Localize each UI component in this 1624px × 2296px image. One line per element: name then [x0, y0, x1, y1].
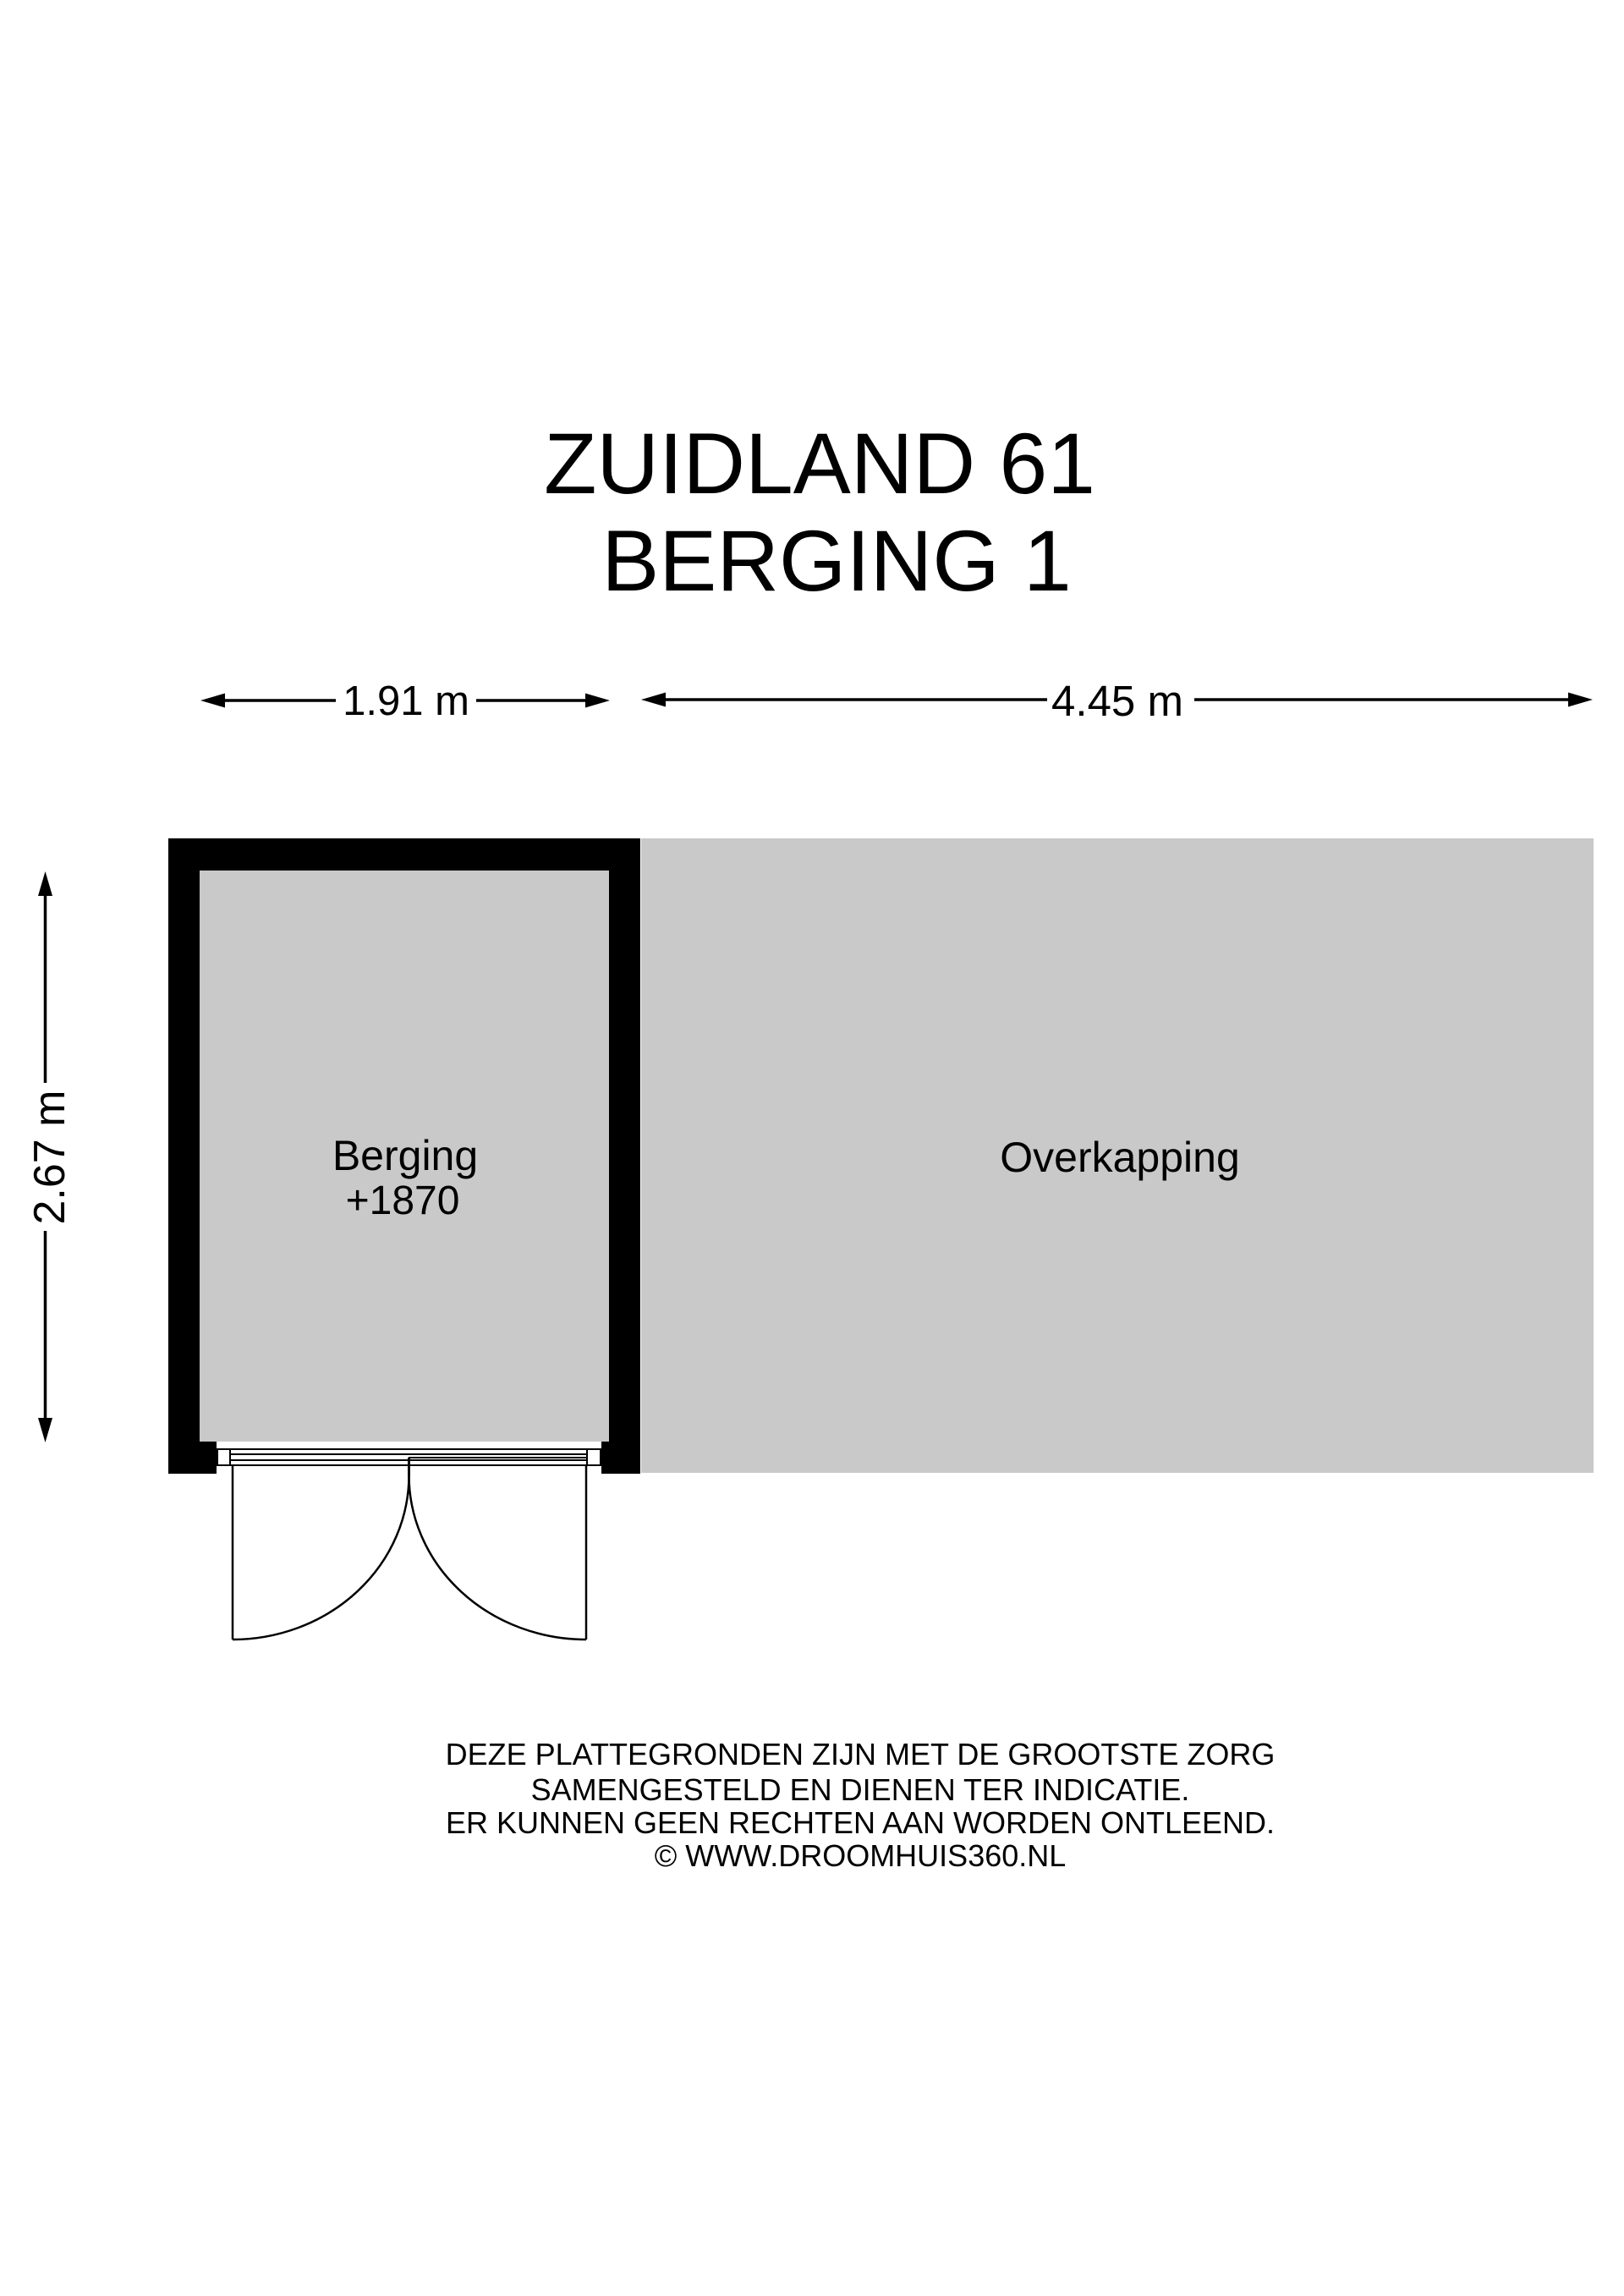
- svg-text:BERGING 1: BERGING 1: [601, 513, 1071, 609]
- svg-text:2.67 m: 2.67 m: [25, 1090, 74, 1225]
- svg-text:DEZE PLATTEGRONDEN ZIJN MET DE: DEZE PLATTEGRONDEN ZIJN MET DE GROOTSTE …: [446, 1737, 1276, 1771]
- svg-text:ER KUNNEN GEEN RECHTEN AAN WOR: ER KUNNEN GEEN RECHTEN AAN WORDEN ONTLEE…: [446, 1805, 1275, 1840]
- svg-text:1.91 m: 1.91 m: [343, 678, 469, 724]
- svg-text:© WWW.DROOMHUIS360.NL: © WWW.DROOMHUIS360.NL: [655, 1838, 1067, 1873]
- svg-text:Overkapping: Overkapping: [1000, 1134, 1240, 1181]
- svg-text:4.45 m: 4.45 m: [1051, 677, 1183, 725]
- svg-text:+1870: +1870: [346, 1178, 460, 1223]
- svg-text:Berging: Berging: [332, 1132, 478, 1179]
- svg-text:ZUIDLAND 61: ZUIDLAND 61: [544, 415, 1095, 512]
- svg-text:SAMENGESTELD EN DIENEN TER IND: SAMENGESTELD EN DIENEN TER INDICATIE.: [531, 1772, 1190, 1807]
